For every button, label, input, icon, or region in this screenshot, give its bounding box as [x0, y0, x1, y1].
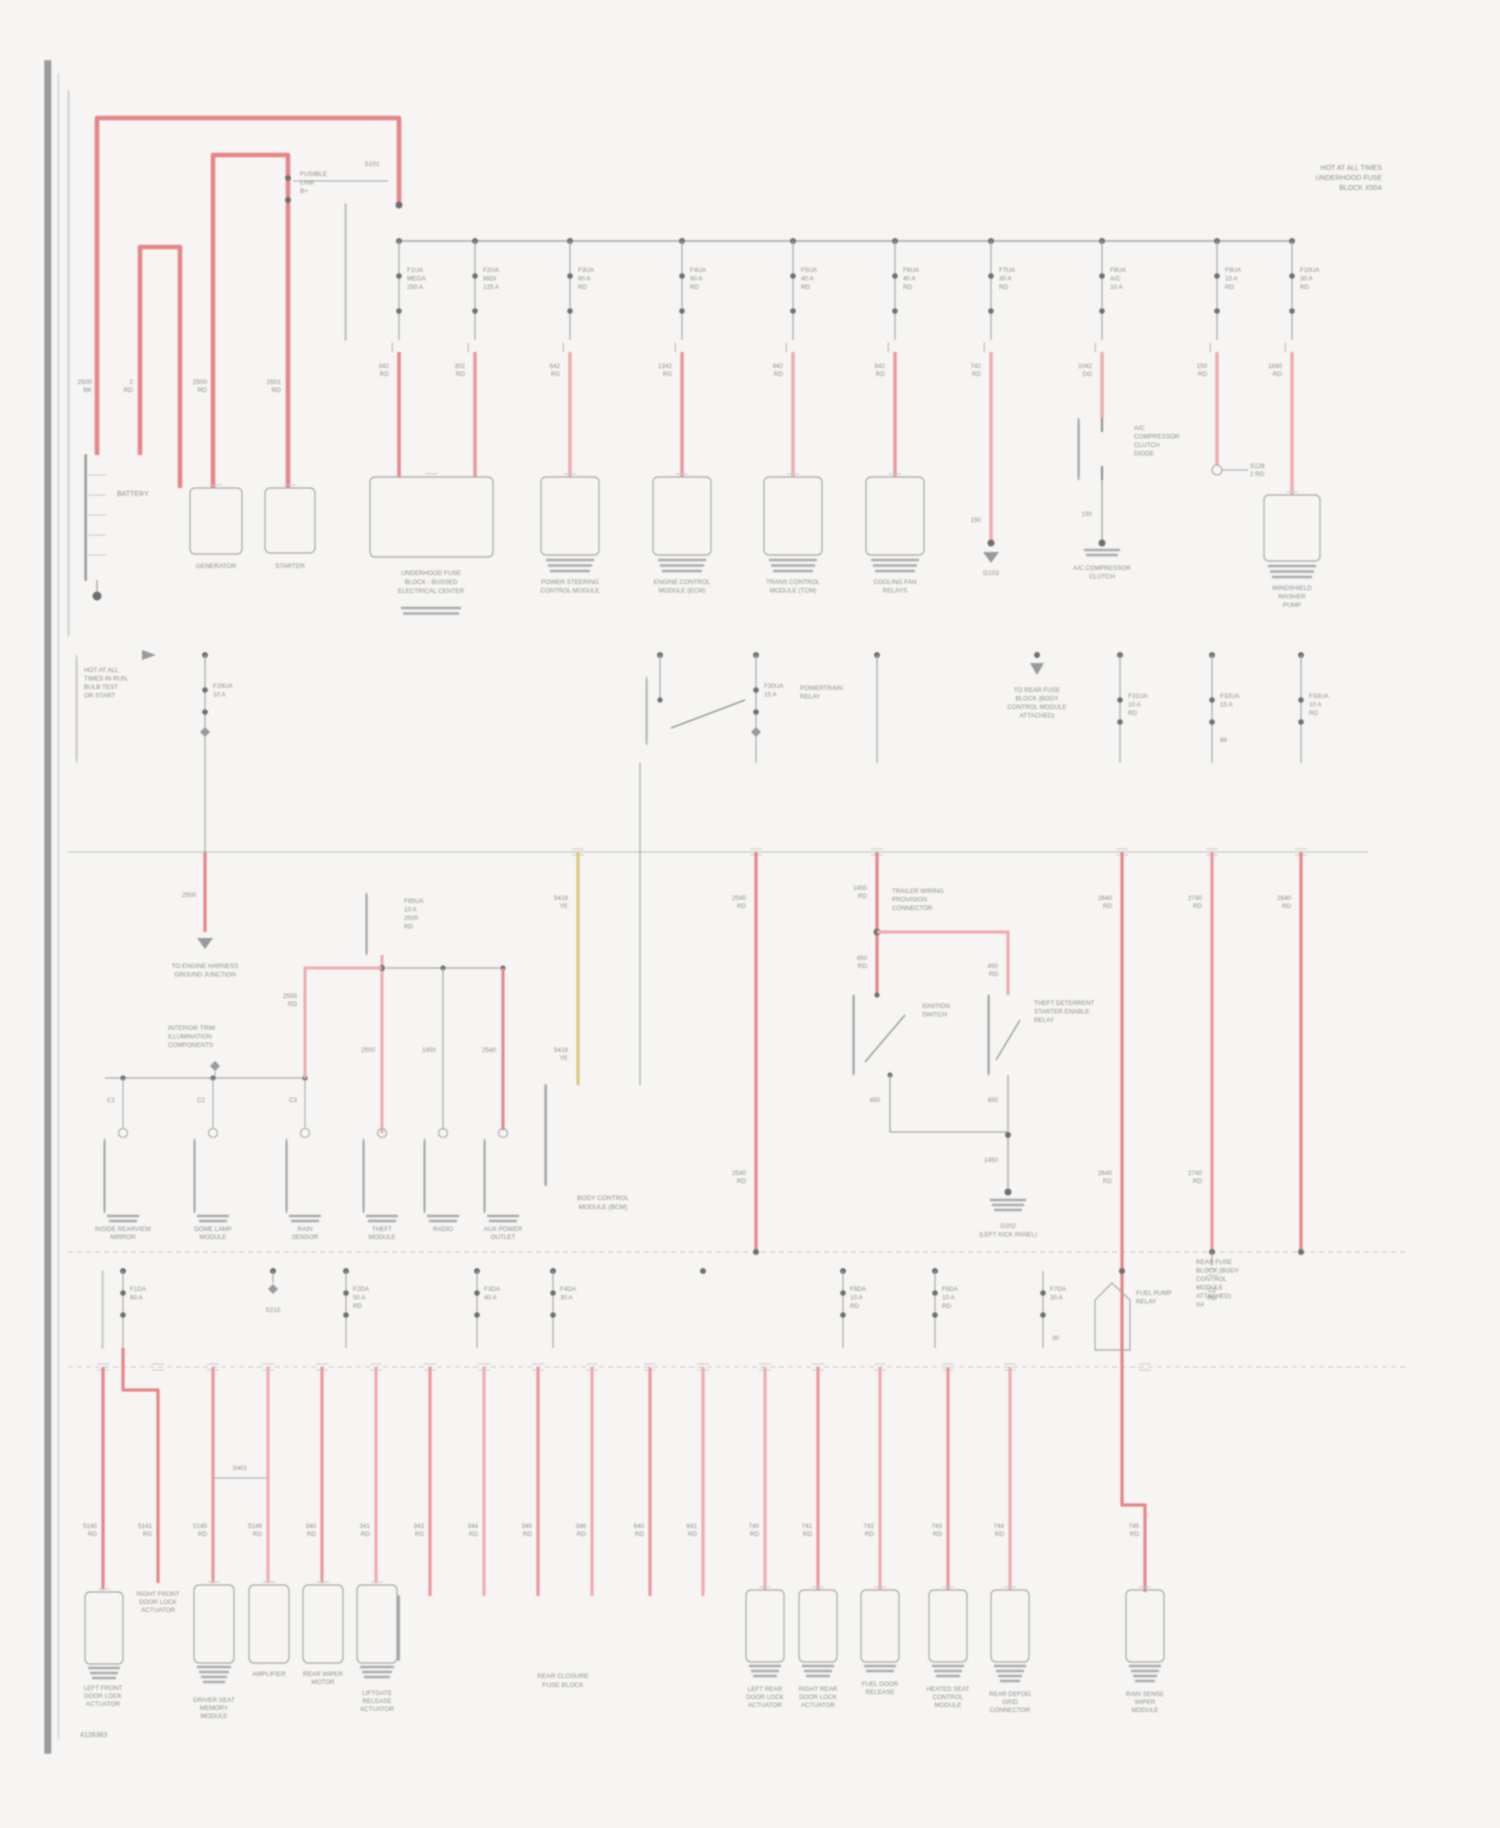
- label-text: F5UA: [801, 267, 818, 274]
- label-text: 2500: [182, 892, 197, 899]
- label-text: RD: [353, 1303, 363, 1310]
- label-text: 250 A: [407, 284, 424, 291]
- label-text: 2740: [1188, 1170, 1203, 1177]
- label-text: 450: [987, 963, 998, 970]
- bus-junction-dot: [1034, 652, 1040, 658]
- label-text: UNDERHOOD FUSE: [1315, 175, 1382, 182]
- label-text: RD: [876, 371, 886, 378]
- fuse-terminal-dot: [343, 1312, 349, 1318]
- label-text: 2540: [732, 895, 747, 902]
- label-text: BULB TEST: [84, 684, 118, 691]
- label-text: SENSOR: [292, 1234, 319, 1241]
- label-text: G103: [983, 570, 999, 577]
- label-text: 740: [748, 1523, 759, 1530]
- label-text: F33UA: [1309, 693, 1329, 700]
- label-text: RAIN SENSE: [1126, 1691, 1164, 1698]
- label-text: RD: [635, 1531, 645, 1538]
- relay-housing-icon: [1095, 1283, 1130, 1350]
- label-text: RD: [801, 284, 811, 291]
- label-text: RD: [999, 284, 1009, 291]
- label-text: 50 A: [353, 1295, 366, 1302]
- label-text: COOLING FAN: [873, 579, 916, 586]
- generator-feed-wire: [140, 247, 180, 488]
- fusible-link-dot: [285, 197, 291, 203]
- bus-arrow-icon: [142, 650, 156, 660]
- label-text: 30 A: [1050, 1295, 1063, 1302]
- label-text: 60 A: [130, 1295, 143, 1302]
- label-text: F8UA: [1110, 267, 1127, 274]
- label-text: PUMP: [1283, 602, 1301, 609]
- label-text: DOOR LOCK: [139, 1599, 178, 1606]
- junction-dot: [1005, 1132, 1011, 1138]
- label-text: 10 A: [850, 1295, 863, 1302]
- junction-dot: [874, 992, 879, 997]
- label-text: FUSIBLE: [300, 171, 328, 178]
- label-text: MODULE (ECM): [659, 588, 706, 595]
- label-text: RELEASE: [362, 1698, 391, 1705]
- label-text: B+: [300, 188, 308, 195]
- label-text: RD: [361, 1531, 371, 1538]
- label-text: AUX POWER: [484, 1226, 523, 1233]
- label-text: RD: [1300, 284, 1310, 291]
- page-border: [46, 62, 50, 1752]
- label-text: A/C: [1110, 276, 1121, 283]
- label-text: BK: [83, 387, 92, 394]
- connector-circle-icon: [119, 1129, 128, 1138]
- label-text: RD: [903, 284, 913, 291]
- label-text: POWERTRAIN: [800, 685, 843, 692]
- connector-block: [984, 343, 985, 352]
- component-box: [746, 1590, 784, 1662]
- label-text: MODULE: [1196, 1285, 1223, 1292]
- label-text: RELAY: [800, 694, 821, 701]
- ground-icon: [983, 552, 999, 563]
- label-text: 2500: [404, 915, 419, 922]
- label-text: RD: [1282, 903, 1292, 910]
- wiring-diagram-page: BATTERY2500BK2RD2500RD2501RDFUSIBLELINKB…: [0, 0, 1500, 1828]
- fuse-terminal-dot: [550, 1290, 556, 1296]
- label-text: RD: [858, 893, 868, 900]
- label-text: RELAY: [1034, 1017, 1055, 1024]
- label-text: 40 A: [484, 1295, 497, 1302]
- label-text: MODULE: [201, 1713, 228, 1720]
- fuse-terminal-dot: [790, 308, 796, 314]
- component-box: [929, 1590, 967, 1662]
- component-box: [484, 1139, 485, 1213]
- label-text: MIDI: [483, 276, 497, 283]
- label-text: 5418: [554, 895, 569, 902]
- label-text: FUSE BLOCK: [542, 1682, 584, 1689]
- label-text: CLUTCH: [1134, 442, 1160, 449]
- label-text: RAIN: [297, 1226, 312, 1233]
- component-box: [249, 1585, 289, 1663]
- bus-junction-dot: [700, 1268, 706, 1274]
- label-text: F6UA: [903, 267, 920, 274]
- label-text: 2501: [267, 379, 282, 386]
- label-text: 150: [1196, 363, 1207, 370]
- label-text: BLOCK (BODY: [1196, 1268, 1240, 1275]
- page-inner-border: [58, 74, 59, 1740]
- label-text: WIPER: [1135, 1699, 1156, 1706]
- label-text: F2DA: [353, 1286, 370, 1293]
- connector-block: [392, 343, 393, 352]
- label-text: MIRROR: [110, 1234, 136, 1241]
- junction-dot: [1298, 719, 1304, 725]
- fuse-terminal-dot: [1099, 273, 1105, 279]
- label-text: 745: [1128, 1523, 1139, 1530]
- label-text: RD: [578, 284, 588, 291]
- label-text: S128: [1250, 463, 1265, 470]
- label-text: RD: [858, 963, 868, 970]
- junction-dot: [1099, 540, 1106, 547]
- junction-dot: [988, 540, 995, 547]
- junction-dot: [1117, 719, 1123, 725]
- label-text: 742: [970, 363, 981, 370]
- label-text: 5146: [248, 1523, 263, 1530]
- label-text: THEFT DETERRENT: [1034, 1000, 1095, 1007]
- label-text: RD: [469, 1531, 479, 1538]
- component-box: [799, 1590, 837, 1662]
- label-text: F4DA: [560, 1286, 577, 1293]
- label-text: 125 A: [483, 284, 500, 291]
- label-text: HEATED SEAT: [927, 1686, 970, 1693]
- label-text: INTERIOR TRIM: [168, 1025, 215, 1032]
- label-text: RD: [663, 371, 673, 378]
- label-text: F4UA: [690, 267, 707, 274]
- label-text: DOME LAMP: [194, 1226, 232, 1233]
- label-text: TIMES IN RUN,: [84, 676, 129, 683]
- component-box: [861, 1590, 899, 1662]
- label-text: SWITCH: [922, 1012, 947, 1019]
- connector-block: [786, 343, 787, 352]
- bcm-box: [545, 1085, 546, 1185]
- fuse-terminal-dot: [550, 1312, 556, 1318]
- label-text: THEFT: [372, 1226, 392, 1233]
- label-text: 10 A: [1128, 702, 1141, 709]
- label-text: BLOCK - BUSSED: [405, 579, 458, 586]
- label-text: 10 A: [942, 1295, 955, 1302]
- label-text: CONTROL: [1196, 1276, 1227, 1283]
- fuse-terminal-dot: [343, 1290, 349, 1296]
- label-text: RD: [577, 1531, 587, 1538]
- label-text: 1342: [658, 363, 673, 370]
- fuse-terminal-dot: [1214, 308, 1220, 314]
- label-text: RD: [995, 1531, 1005, 1538]
- label-text: POWER STEERING: [541, 579, 599, 586]
- label-text: RD: [850, 1303, 860, 1310]
- label-text: RD: [1273, 371, 1283, 378]
- label-text: RD: [380, 371, 390, 378]
- label-text: RD: [198, 1531, 208, 1538]
- label-text: 30: [1052, 1335, 1060, 1342]
- label-text: RADIO: [433, 1226, 453, 1233]
- component-box: [194, 1139, 195, 1213]
- label-text: 346: [575, 1523, 586, 1530]
- label-text: GROUND JUNCTION: [174, 972, 236, 979]
- label-text: F10UA: [1300, 267, 1320, 274]
- junction-dot: [1005, 1189, 1012, 1196]
- fuse-terminal-dot: [1040, 1290, 1046, 1296]
- label-text: RD: [88, 1531, 98, 1538]
- battery-ground-dot: [93, 592, 102, 601]
- label-text: RIGHT REAR: [799, 1686, 838, 1693]
- label-text: ELECTRICAL CENTER: [398, 588, 465, 595]
- long-run-wire: [1122, 852, 1145, 1592]
- fuse-terminal-dot: [892, 273, 898, 279]
- component-box: [424, 1139, 425, 1213]
- label-text: WINDSHIELD: [1272, 585, 1312, 592]
- label-text: 744: [993, 1523, 1004, 1530]
- label-text: F30UA: [764, 683, 784, 690]
- battery-symbol: [85, 455, 86, 580]
- label-text: RIGHT FRONT: [137, 1591, 180, 1598]
- label-text: F2UA: [483, 267, 500, 274]
- label-text: 5145: [193, 1523, 208, 1530]
- label-text: ATTACHED): [1019, 713, 1054, 720]
- label-text: 342: [378, 363, 389, 370]
- label-text: C3: [289, 1097, 298, 1104]
- fuse-terminal-dot: [1040, 1312, 1046, 1318]
- battery-feed-wire: [97, 118, 399, 455]
- relay-switch-blade: [671, 700, 745, 728]
- underhood-fuse-block-frame: [345, 204, 346, 340]
- label-text: 302: [454, 363, 465, 370]
- label-text: 60 A: [690, 276, 703, 283]
- label-text: 1450: [853, 885, 868, 892]
- label-text: ACTUATOR: [86, 1701, 121, 1708]
- label-text: 2740: [1188, 895, 1203, 902]
- label-text: RELEASE: [865, 1689, 894, 1696]
- label-text: YE: [560, 903, 568, 910]
- elbow-wire: [123, 1348, 158, 1583]
- label-text: RD: [456, 371, 466, 378]
- label-text: RD: [989, 971, 999, 978]
- band4-fuse-block-frame: [102, 1271, 103, 1348]
- label-text: 150: [970, 517, 981, 524]
- label-text: DOOR LOCK: [746, 1694, 785, 1701]
- label-text: 10 A: [1309, 702, 1322, 709]
- label-text: COMPONENTS: [168, 1042, 213, 1049]
- label-text: MODULE: [1132, 1707, 1159, 1714]
- label-text: FUEL DOOR: [862, 1681, 899, 1688]
- label-text: RD: [933, 1531, 943, 1538]
- junction-dot: [1209, 719, 1215, 725]
- label-text: REAR CLOSURE: [537, 1673, 589, 1680]
- fuse-terminal-dot: [472, 308, 478, 314]
- label-text: CONTROL MODULE: [1007, 704, 1066, 711]
- label-text: 340: [305, 1523, 316, 1530]
- label-text: BLOCK X50A: [1339, 185, 1382, 192]
- junction-dot: [1117, 697, 1123, 703]
- component-box: [764, 477, 822, 555]
- band2-frame: [76, 655, 77, 763]
- label-text: MODULE: [935, 1702, 962, 1709]
- label-text: F31UA: [1128, 693, 1148, 700]
- junction-dot: [753, 709, 759, 715]
- junction-dot: [1209, 697, 1215, 703]
- connector-block: [468, 343, 469, 352]
- component-box: [991, 1590, 1029, 1662]
- label-text: RD: [942, 1303, 952, 1310]
- label-text: 10 A: [213, 692, 226, 699]
- label-text: 30 A: [1300, 276, 1313, 283]
- label-text: 30 A: [999, 276, 1012, 283]
- starter-feed-wire: [213, 155, 288, 488]
- fuse-terminal-dot: [932, 1312, 938, 1318]
- label-text: F6DA: [942, 1286, 959, 1293]
- fusible-link-dot: [285, 175, 291, 181]
- label-text: RD: [198, 387, 208, 394]
- rear-closure-fuse-block: [398, 1596, 399, 1660]
- fuse-terminal-dot: [567, 308, 573, 314]
- label-text: RD: [865, 1531, 875, 1538]
- junction-dot: [657, 697, 662, 702]
- fuse-terminal-dot: [988, 273, 994, 279]
- label-text: F5DA: [850, 1286, 867, 1293]
- label-text: F3DA: [484, 1286, 501, 1293]
- fuse-terminal-dot: [840, 1290, 846, 1296]
- down-arrow-icon: [1030, 663, 1044, 675]
- label-text: MODULE (BCM): [579, 1204, 627, 1211]
- label-text: RD: [1103, 1178, 1113, 1185]
- fuse-terminal-dot: [396, 308, 402, 314]
- label-text: RD: [774, 371, 784, 378]
- splice-icon: [268, 1284, 278, 1294]
- label-text: 641: [686, 1523, 697, 1530]
- label-text: RD: [1198, 371, 1208, 378]
- label-text: UNDERHOOD FUSE: [401, 570, 461, 577]
- label-text: 40 A: [903, 276, 916, 283]
- powertrain-relay-box: [646, 677, 647, 745]
- junction-dot: [1298, 697, 1304, 703]
- label-text: 15 A: [1220, 702, 1233, 709]
- label-text: OUTLET: [491, 1234, 516, 1241]
- label-text: TRANS CONTROL: [766, 579, 820, 586]
- label-text: 86: [1220, 737, 1228, 744]
- diagram-blur-layer: BATTERY2500BK2RD2500RD2501RDFUSIBLELINKB…: [0, 0, 1500, 1828]
- label-text: DOOR LOCK: [799, 1694, 838, 1701]
- label-text: RD: [124, 387, 134, 394]
- label-text: MODULE (TCM): [770, 588, 817, 595]
- fuse-terminal-dot: [120, 1312, 126, 1318]
- ground-icon: [197, 938, 213, 949]
- label-text: F7UA: [999, 267, 1016, 274]
- label-text: 2500: [193, 379, 208, 386]
- label-text: F3UA: [578, 267, 595, 274]
- label-text: 4128383: [80, 1732, 107, 1739]
- switch-blade: [865, 1015, 905, 1062]
- connector-block: [563, 343, 564, 352]
- label-text: LEFT REAR: [748, 1686, 783, 1693]
- fuse-terminal-dot: [474, 1312, 480, 1318]
- fuse-terminal-dot: [396, 273, 402, 279]
- label-text: ILLUMINATION: [168, 1034, 212, 1041]
- label-text: 2500: [78, 379, 93, 386]
- label-text: S401: [233, 1465, 248, 1472]
- label-text: DG: [1083, 371, 1093, 378]
- label-text: OR START: [84, 693, 115, 700]
- label-text: S101: [364, 161, 380, 168]
- label-text: 150: [1081, 511, 1092, 518]
- label-text: 40 A: [801, 276, 814, 283]
- label-text: 343: [413, 1523, 424, 1530]
- component-box: [104, 1139, 105, 1213]
- band1-frame: [68, 90, 69, 637]
- fuse-terminal-dot: [679, 273, 685, 279]
- connector-block: [1285, 343, 1286, 352]
- label-text: F85UA: [404, 898, 424, 905]
- pink-branch-wire: [305, 968, 382, 1078]
- label-text: RD: [143, 1531, 153, 1538]
- ignition-switch-box: [853, 995, 854, 1075]
- label-text: 10 A: [404, 907, 417, 914]
- fuse-terminal-dot: [202, 687, 208, 693]
- fuse-terminal-dot: [120, 1290, 126, 1296]
- label-text: 1450: [422, 1047, 437, 1054]
- starter-enable-relay-box: [988, 995, 989, 1075]
- switch-blade: [996, 1020, 1020, 1060]
- label-text: 341: [359, 1523, 370, 1530]
- label-text: 345: [521, 1523, 532, 1530]
- label-text: YE: [560, 1055, 568, 1062]
- label-text: HOT AT ALL: [84, 667, 119, 674]
- connector-circle-icon: [1212, 465, 1222, 475]
- fuse-terminal-dot: [202, 709, 208, 715]
- label-text: 743: [931, 1523, 942, 1530]
- label-text: RELAYS: [883, 588, 907, 595]
- label-text: IGNITION: [922, 1003, 950, 1010]
- connector-block: [1095, 343, 1096, 352]
- component-box: [1126, 1590, 1164, 1662]
- label-text: WASHER: [1278, 594, 1306, 601]
- label-text: RD: [1225, 284, 1235, 291]
- fuse-holder-box: [366, 893, 367, 955]
- label-text: F29UA: [213, 683, 233, 690]
- label-text: TO REAR FUSE: [1014, 687, 1060, 694]
- label-text: 5418: [554, 1047, 569, 1054]
- label-text: 15 A: [1225, 276, 1238, 283]
- label-text: REAR WIPER: [303, 1671, 343, 1678]
- fuse-terminal-dot: [1099, 308, 1105, 314]
- splice-icon: [210, 1061, 220, 1071]
- label-text: HOT AT ALL TIMES: [1321, 165, 1383, 172]
- label-text: AMPLIFIER: [252, 1671, 286, 1678]
- label-text: F7DA: [1050, 1286, 1067, 1293]
- component-box: [866, 477, 924, 555]
- label-text: INSIDE REARVIEW: [95, 1226, 151, 1233]
- label-text: (LEFT KICK PANEL): [979, 1232, 1037, 1239]
- label-text: STARTER ENABLE: [1034, 1009, 1089, 1016]
- label-text: MEGA: [407, 276, 426, 283]
- generator-box: [190, 488, 242, 554]
- label-text: 442: [772, 363, 783, 370]
- label-text: RELAY: [1136, 1299, 1157, 1306]
- label-text: RD: [1193, 1178, 1203, 1185]
- label-text: 5140: [83, 1523, 98, 1530]
- label-text: CLUTCH: [1089, 574, 1115, 581]
- label-text: MOTOR: [311, 1679, 335, 1686]
- label-text: LEFT FRONT: [84, 1685, 123, 1692]
- label-text: F1DA: [130, 1286, 147, 1293]
- label-text: TRAILER WIRING: [892, 888, 944, 895]
- splice-icon: [200, 727, 210, 737]
- starter-box: [265, 488, 315, 553]
- label-text: GENERATOR: [196, 563, 237, 570]
- fuse-terminal-dot: [932, 1290, 938, 1296]
- fuse-terminal-dot: [892, 308, 898, 314]
- label-text: RD: [1130, 1531, 1140, 1538]
- label-text: GRID: [1002, 1699, 1018, 1706]
